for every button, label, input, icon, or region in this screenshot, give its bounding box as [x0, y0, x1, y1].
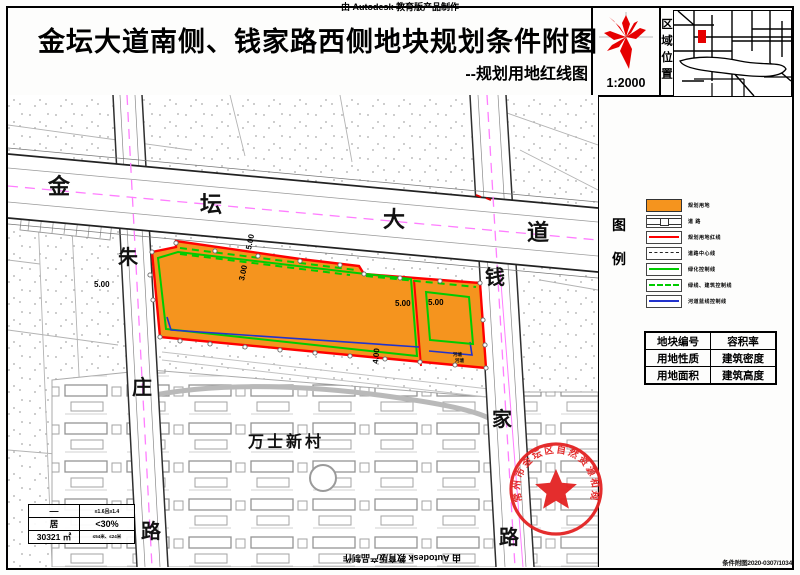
road-label-da: 大	[383, 207, 405, 232]
legend: 规划用地 道 路 规划用地红线 道路中心线 绿化控制线 绿线、建筑控制线 河道蓝…	[646, 200, 732, 312]
svg-text:朱: 朱	[118, 246, 139, 269]
minimap-site-marker	[698, 30, 706, 43]
road-label-jin: 金	[47, 174, 71, 199]
autodesk-credit-bottom: 由 Autodesk 教育版产品制作	[336, 552, 468, 565]
stamp-star-icon	[535, 469, 577, 509]
swatch-black-dash	[646, 247, 682, 260]
value-cell: —	[29, 505, 80, 518]
attr-cell: 容积率	[711, 332, 777, 350]
region-location-label: 区域位置	[660, 18, 674, 84]
page-title: 金坛大道南侧、钱家路西侧地块规划条件附图	[38, 20, 598, 59]
swatch-red-line	[646, 231, 682, 244]
dim-bottom: 4.00	[371, 347, 381, 364]
attr-cell: 地块编号	[645, 332, 711, 350]
legend-item: 河道蓝线控制线	[646, 296, 732, 307]
legend-item: 道路中心线	[646, 248, 732, 259]
value-cell: <30%	[80, 518, 135, 531]
legend-title-bottom: 例	[612, 249, 626, 269]
value-cell: 居	[29, 518, 80, 531]
swatch-green-dash	[646, 279, 682, 292]
region-minimap	[673, 10, 792, 97]
swatch-green-line	[646, 263, 682, 276]
svg-text:家: 家	[492, 407, 513, 431]
swatch-parcel-fill	[646, 199, 682, 212]
attr-cell: 建筑高度	[711, 367, 777, 385]
legend-title-top: 图	[612, 215, 626, 235]
header-divider-1	[591, 8, 593, 95]
svg-text:庄: 庄	[132, 375, 152, 399]
official-stamp: 常州市金坛区自然资源和规划局	[504, 437, 608, 541]
svg-text:路: 路	[141, 519, 162, 543]
swatch-blue-line	[646, 295, 682, 308]
scale-label: 1:2000	[594, 76, 658, 90]
svg-text:河塘: 河塘	[454, 357, 464, 364]
north-arrow-icon	[596, 11, 656, 73]
road-label-tan: 坛	[200, 192, 222, 217]
road-label-dao: 道	[527, 220, 549, 245]
attr-cell: 建筑密度	[711, 350, 777, 367]
value-cell: 30321 ㎡	[29, 531, 80, 544]
attr-cell: 用地性质	[645, 350, 711, 367]
village-label: 万士新村	[247, 432, 324, 451]
value-table: — ≤1.6且≥1.4 居 <30% 30321 ㎡ ≤54米、≤24米	[28, 504, 135, 544]
value-cell: ≤54米、≤24米	[80, 531, 135, 544]
dim-mid-b: 5.00	[428, 298, 444, 307]
document-number: 条件附图2020-0307/1034	[686, 557, 792, 567]
attr-cell: 用地面积	[645, 367, 711, 385]
legend-item: 绿线、建筑控制线	[646, 280, 732, 291]
legend-item: 绿化控制线	[646, 264, 732, 275]
legend-item: 道 路	[646, 216, 732, 227]
swatch-road	[646, 215, 682, 228]
page-subtitle: --规划用地红线图	[465, 60, 588, 84]
dim-left: 5.00	[94, 280, 110, 289]
dim-mid-a: 5.00	[395, 299, 411, 308]
value-cell: ≤1.6且≥1.4	[80, 505, 135, 518]
svg-text:钱: 钱	[485, 265, 505, 289]
svg-text:河塘: 河塘	[452, 351, 462, 358]
legend-item: 规划用地	[646, 200, 732, 211]
attribute-table: 地块编号 容积率 用地性质 建筑密度 用地面积 建筑高度	[644, 331, 777, 385]
legend-item: 规划用地红线	[646, 232, 732, 243]
